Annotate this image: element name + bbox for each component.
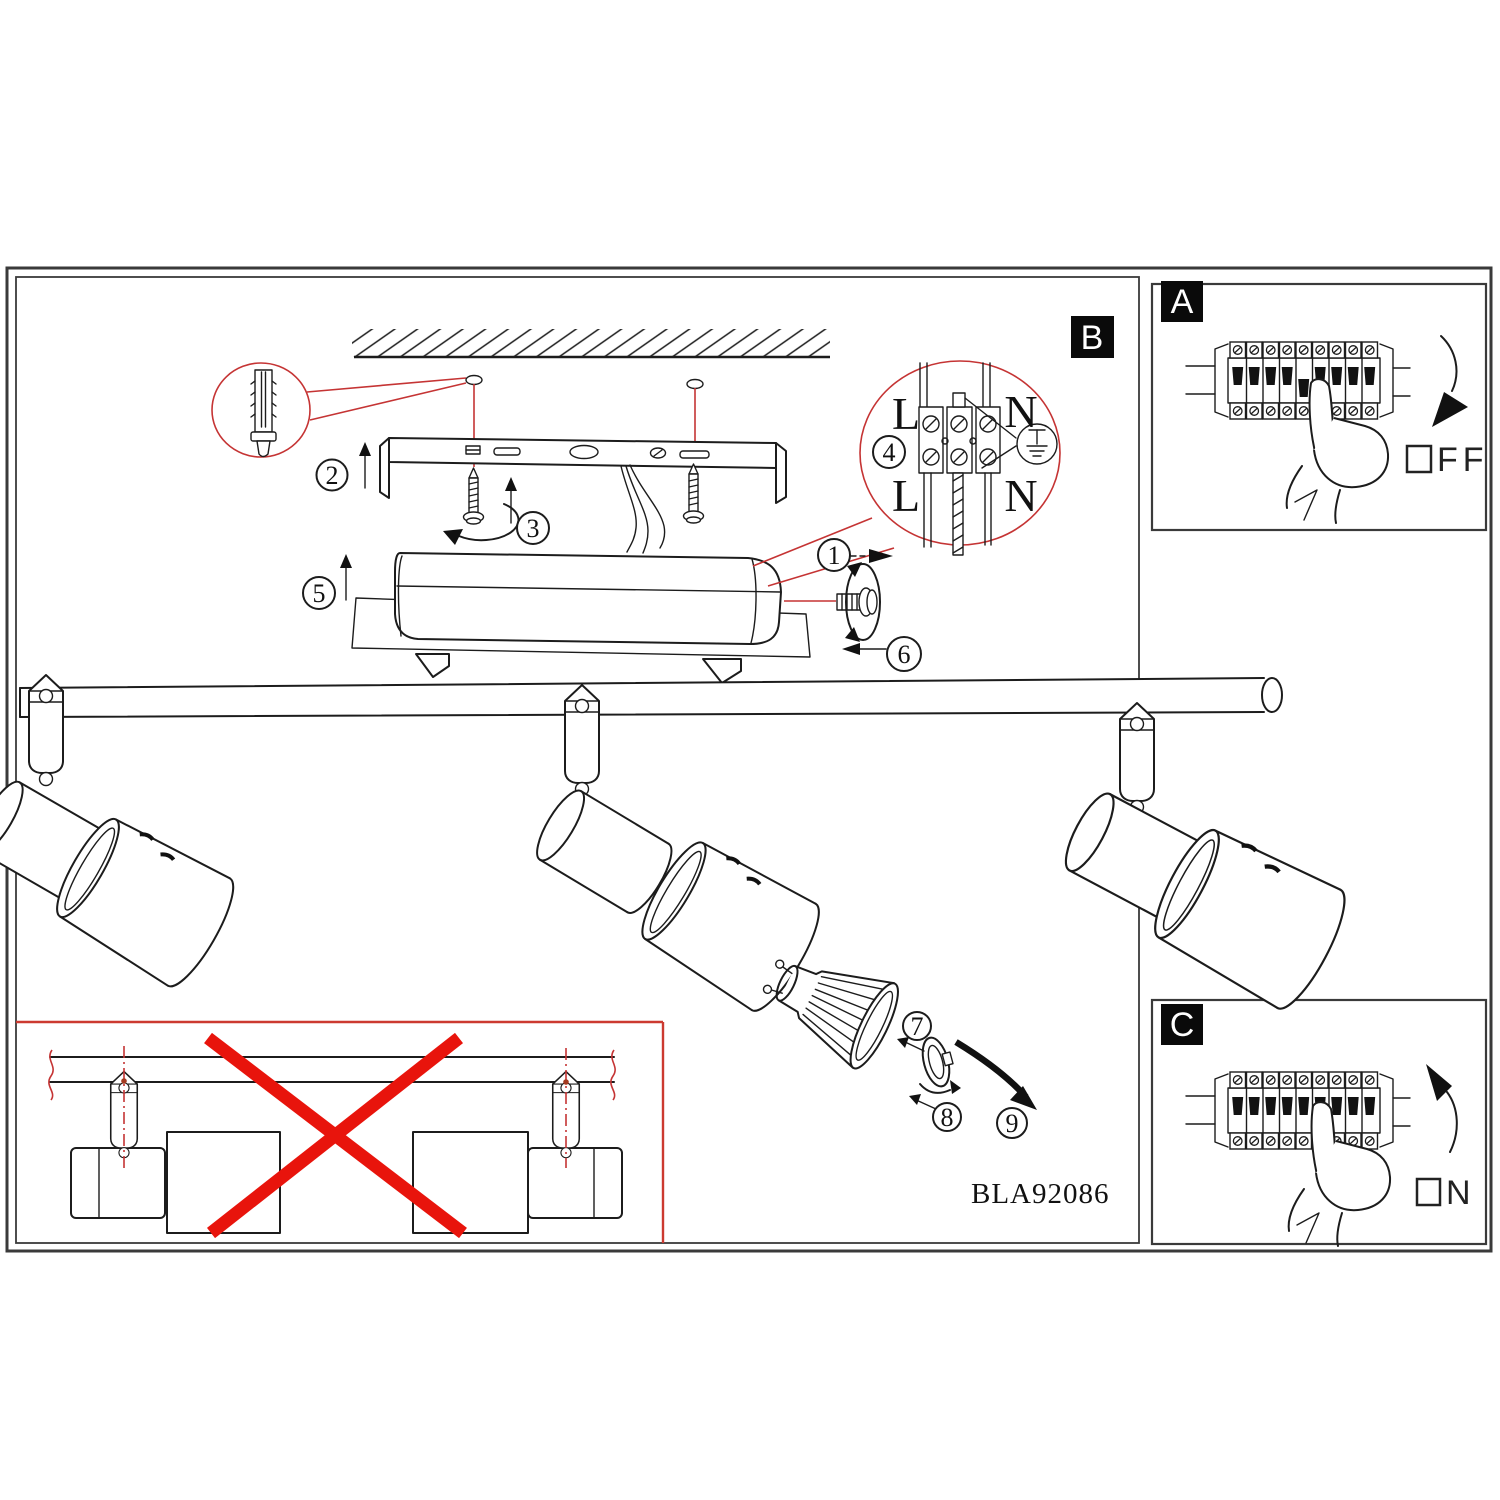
spotlight-left [0, 675, 245, 994]
canopy-side-screw [837, 588, 877, 616]
step-3-number: 3 [527, 514, 540, 543]
wall-anchor-icon [251, 370, 276, 457]
mounting-bracket [380, 438, 786, 503]
ceiling-hole-right [687, 380, 703, 389]
canopy-box [395, 553, 781, 644]
wrong-spot-cylinder-right [528, 1148, 622, 1218]
ceiling-hole-left [466, 376, 482, 385]
step-2-number: 2 [326, 461, 339, 490]
step-9-number: 9 [1006, 1109, 1019, 1138]
diagram-canvas: 1 2 3 4 5 6 7 8 [0, 0, 1500, 1500]
mounting-bracket-assembly [380, 376, 786, 554]
canopy-tab-right [703, 659, 741, 683]
off-text: FF [1437, 441, 1489, 479]
step-1-badge: 1 [818, 539, 850, 571]
terminal-column [919, 407, 943, 473]
wrong-spot-cylinder-left [71, 1148, 165, 1218]
retaining-ring [918, 1034, 958, 1090]
fixture-bar [20, 678, 1282, 717]
step9-swing-arrow [956, 1042, 1026, 1097]
terminal-label-n-bottom: N [1004, 470, 1037, 521]
panel-a-label: A [1171, 283, 1194, 321]
canopy-assembly [352, 553, 880, 683]
screw-right [684, 464, 704, 523]
step-9-badge: 9 [997, 1108, 1027, 1138]
ceiling-hatch [352, 329, 830, 357]
step-1-number: 1 [828, 541, 841, 570]
terminal-column [947, 407, 972, 473]
installation-manual-page: 1 2 3 4 5 6 7 8 [0, 0, 1500, 1500]
step-4-badge: 4 [873, 436, 905, 468]
earth-tab [953, 393, 965, 407]
terminal-label-n-top: N [1004, 386, 1037, 437]
step-7-badge: 7 [903, 1012, 931, 1041]
mains-wires [621, 465, 665, 553]
step-2-badge: 2 [317, 460, 348, 491]
spotlight-right [1046, 703, 1357, 1017]
canopy-tab-left [416, 654, 449, 677]
step8-arrowhead [909, 1094, 921, 1105]
step-7-number: 7 [911, 1012, 924, 1041]
step-8-badge: 8 [933, 1103, 961, 1132]
wrong-spot-head-right [413, 1132, 528, 1233]
wrong-installation-box [16, 1022, 663, 1243]
step-4-number: 4 [883, 438, 896, 467]
step-badges: 1 2 3 4 5 6 7 8 [303, 436, 1027, 1138]
terminal-label-l-top: L [892, 388, 920, 439]
panel-c-label: C [1170, 1006, 1195, 1044]
step-5-number: 5 [313, 579, 326, 608]
hatch-pattern-band [352, 329, 830, 357]
terminal-label-l-bottom: L [892, 470, 920, 521]
step-5-badge: 5 [303, 577, 335, 609]
step-6-badge: 6 [887, 637, 921, 671]
step-3-badge: 3 [517, 512, 549, 544]
bar-end-cap [1262, 678, 1282, 712]
on-text: N [1446, 1174, 1476, 1212]
step-6-number: 6 [898, 640, 911, 669]
step-8-number: 8 [941, 1103, 954, 1132]
section-b-label: B [1081, 319, 1104, 357]
model-code: BLA92086 [971, 1178, 1110, 1210]
screw-left [464, 468, 484, 524]
